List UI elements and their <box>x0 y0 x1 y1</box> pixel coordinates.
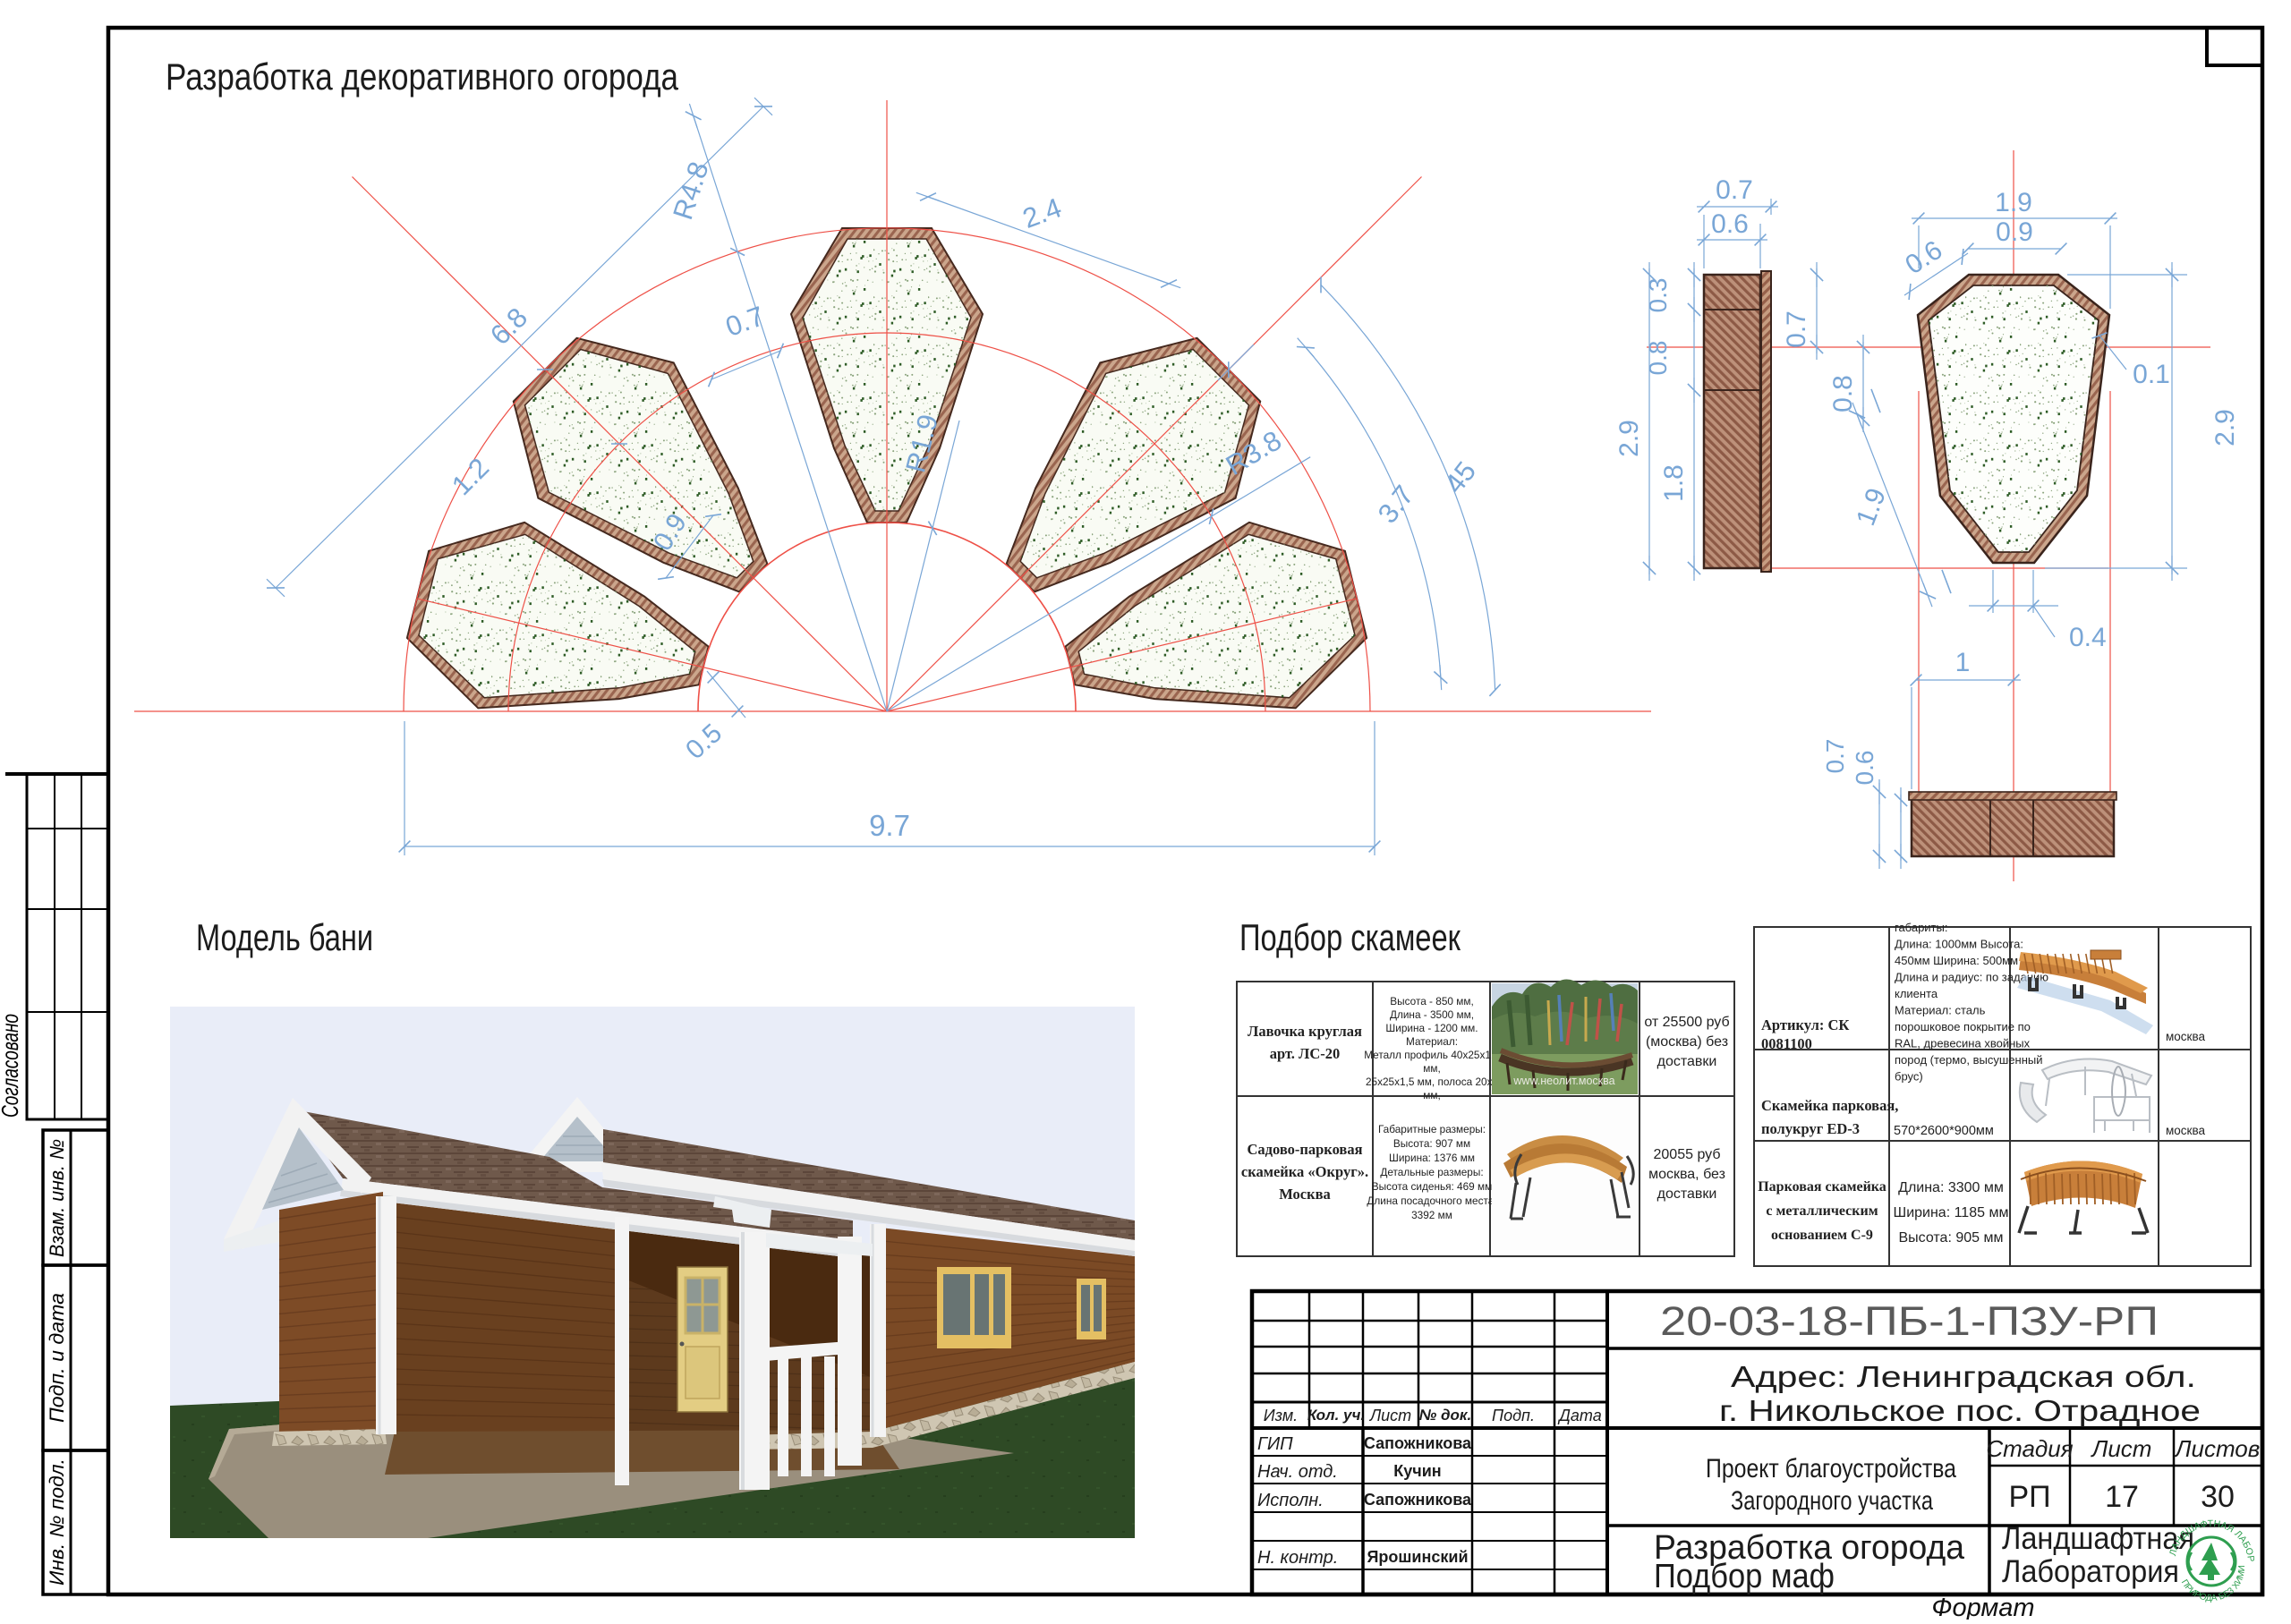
svg-text:мм,: мм, <box>1423 1062 1441 1075</box>
svg-text:Ярошинский: Ярошинский <box>1367 1548 1468 1566</box>
svg-text:основанием С-9: основанием С-9 <box>1771 1228 1873 1243</box>
svg-text:доставки: доставки <box>1657 1054 1717 1069</box>
svg-text:Садово-парковая: Садово-парковая <box>1247 1141 1362 1158</box>
svg-text:Ширина: 1376 мм: Ширина: 1376 мм <box>1389 1152 1475 1164</box>
svg-text:брус): брус) <box>1895 1070 1923 1084</box>
svg-text:20055 руб: 20055 руб <box>1654 1147 1721 1162</box>
svg-text:Лаборатория: Лаборатория <box>2002 1554 2179 1589</box>
svg-text:0081100: 0081100 <box>1761 1035 1812 1052</box>
svg-text:порошковое покрытие по: порошковое покрытие по <box>1895 1020 2031 1033</box>
svg-text:3392 мм: 3392 мм <box>1411 1209 1452 1221</box>
svg-text:Проект благоустройства: Проект благоустройства <box>1706 1454 1956 1484</box>
svg-text:450мм Ширина: 500мм: 450мм Ширина: 500мм <box>1895 954 2018 967</box>
svg-text:0.7: 0.7 <box>1716 175 1753 205</box>
svg-text:клиента: клиента <box>1895 987 1938 1000</box>
svg-text:Сапожникова: Сапожникова <box>1364 1491 1472 1509</box>
svg-text:Формат: Формат <box>1931 1594 2034 1620</box>
svg-text:Высота: 907 мм: Высота: 907 мм <box>1393 1137 1470 1150</box>
svg-text:Кол. уч.: Кол. уч. <box>1307 1407 1365 1424</box>
svg-text:с металлическим: с металлическим <box>1766 1203 1878 1219</box>
svg-text:Длина посадочного места:: Длина посадочного места: <box>1367 1195 1496 1207</box>
svg-text:Н. контр.: Н. контр. <box>1257 1548 1338 1568</box>
svg-text:Высота - 850 мм,: Высота - 850 мм, <box>1390 995 1473 1008</box>
svg-text:Ширина: 1185 мм: Ширина: 1185 мм <box>1894 1205 2009 1220</box>
svg-text:Исполн.: Исполн. <box>1257 1491 1324 1510</box>
svg-text:Подп.: Подп. <box>1492 1407 1535 1424</box>
svg-text:Артикул: СК: Артикул: СК <box>1761 1016 1849 1033</box>
svg-text:Стадия: Стадия <box>1986 1435 2073 1462</box>
svg-text:0.6: 0.6 <box>1851 751 1878 786</box>
svg-text:0.7: 0.7 <box>1782 310 1811 348</box>
svg-text:Детальные размеры:: Детальные размеры: <box>1380 1166 1483 1178</box>
svg-text:арт. ЛС-20: арт. ЛС-20 <box>1270 1045 1341 1062</box>
svg-text:1: 1 <box>1955 648 1971 677</box>
svg-text:полукруг ED-3: полукруг ED-3 <box>1761 1120 1860 1137</box>
svg-text:Нач. отд.: Нач. отд. <box>1257 1462 1338 1482</box>
svg-text:Подбор маф: Подбор маф <box>1654 1558 1835 1595</box>
svg-text:Модель бани: Модель бани <box>196 916 373 958</box>
svg-text:0.8: 0.8 <box>1828 375 1858 412</box>
svg-text:Дата: Дата <box>1557 1407 1602 1424</box>
svg-text:570*2600*900мм: 570*2600*900мм <box>1894 1124 1994 1138</box>
svg-text:Лавочка круглая: Лавочка круглая <box>1248 1023 1362 1040</box>
svg-text:Длина: 3300 мм: Длина: 3300 мм <box>1898 1180 2004 1195</box>
svg-text:Высота сиденья: 469 мм: Высота сиденья: 469 мм <box>1372 1180 1493 1193</box>
svg-text:Парковая скамейка: Парковая скамейка <box>1758 1179 1886 1195</box>
svg-text:Высота: 905 мм: Высота: 905 мм <box>1899 1230 2004 1246</box>
svg-text:доставки: доставки <box>1657 1186 1717 1202</box>
svg-text:0.9: 0.9 <box>1996 217 2033 247</box>
svg-text:Длина - 3500 мм,: Длина - 3500 мм, <box>1390 1008 1474 1021</box>
svg-text:25х25х1,5 мм, полоса 20х4: 25х25х1,5 мм, полоса 20х4 <box>1366 1076 1499 1088</box>
svg-text:Адрес: Ленинградская обл.: Адрес: Ленинградская обл. <box>1731 1360 2196 1393</box>
svg-text:Загородного участка: Загородного участка <box>1731 1486 1933 1516</box>
svg-text:пород (термо, высушенный: пород (термо, высушенный <box>1895 1053 2043 1067</box>
svg-text:17: 17 <box>2105 1480 2139 1514</box>
svg-text:от 25500 руб: от 25500 руб <box>1644 1015 1729 1030</box>
svg-text:Сапожникова: Сапожникова <box>1364 1434 1472 1452</box>
svg-text:москва: москва <box>2166 1030 2205 1043</box>
svg-text:Подп. и дата: Подп. и дата <box>46 1293 68 1423</box>
svg-text:2.9: 2.9 <box>2210 409 2240 446</box>
svg-text:москва: москва <box>2166 1124 2205 1137</box>
svg-text:Кучин: Кучин <box>1393 1462 1441 1480</box>
svg-text:Подбор скамеек: Подбор скамеек <box>1239 916 1461 958</box>
svg-text:Взам. инв. №: Взам. инв. № <box>46 1139 68 1257</box>
svg-text:№ док.: № док. <box>1419 1407 1471 1424</box>
svg-text:9.7: 9.7 <box>869 809 910 842</box>
svg-text:Согласовано: Согласовано <box>0 1014 23 1118</box>
svg-text:0.4: 0.4 <box>2069 623 2107 652</box>
svg-text:Листов: Листов <box>2174 1435 2261 1462</box>
svg-text:Материал: сталь: Материал: сталь <box>1895 1004 1986 1017</box>
svg-text:Лист: Лист <box>1369 1407 1411 1424</box>
svg-text:Ландшафтная: Ландшафтная <box>2002 1521 2194 1556</box>
svg-text:RAL, древесина хвойных: RAL, древесина хвойных <box>1895 1037 2031 1050</box>
svg-text:РП: РП <box>2008 1480 2050 1514</box>
svg-text:мм,: мм, <box>1423 1089 1441 1101</box>
svg-text:скамейка «Округ».: скамейка «Округ». <box>1241 1163 1368 1180</box>
svg-text:г. Никольское пос. Отрадное: г. Никольское пос. Отрадное <box>1719 1394 2201 1427</box>
svg-text:Москва: Москва <box>1279 1186 1331 1203</box>
svg-text:Металл профиль 40х25х1,5: Металл профиль 40х25х1,5 <box>1364 1049 1500 1061</box>
svg-text:0.1: 0.1 <box>2133 360 2170 389</box>
svg-text:(москва) без: (москва) без <box>1646 1034 1728 1050</box>
svg-text:Лист: Лист <box>2091 1435 2152 1462</box>
svg-text:0.6: 0.6 <box>1711 209 1749 239</box>
svg-text:Длина: 1000мм Высота:: Длина: 1000мм Высота: <box>1895 938 2023 951</box>
svg-text:2.9: 2.9 <box>1614 420 1644 457</box>
svg-text:москва, без: москва, без <box>1648 1167 1725 1182</box>
svg-text:Скамейка парковая,: Скамейка парковая, <box>1761 1097 1898 1114</box>
svg-text:Материал:: Материал: <box>1406 1035 1458 1048</box>
svg-text:Ширина - 1200 мм.: Ширина - 1200 мм. <box>1385 1022 1478 1034</box>
svg-text:30: 30 <box>2201 1480 2235 1514</box>
svg-text:Разработка декоративного огоро: Разработка декоративного огорода <box>166 55 679 98</box>
svg-text:0.7: 0.7 <box>1821 739 1849 774</box>
svg-text:Габаритные размеры:: Габаритные размеры: <box>1378 1123 1486 1135</box>
svg-text:1.9: 1.9 <box>1995 188 2032 217</box>
svg-text:20-03-18-ПБ-1-ПЗУ-РП: 20-03-18-ПБ-1-ПЗУ-РП <box>1660 1298 2159 1344</box>
svg-text:0.8: 0.8 <box>1644 341 1672 376</box>
svg-text:ГИП: ГИП <box>1257 1434 1293 1454</box>
svg-text:Изм.: Изм. <box>1264 1407 1298 1424</box>
svg-text:0.3: 0.3 <box>1644 278 1672 313</box>
svg-text:www.неолит.москва: www.неолит.москва <box>1512 1075 1614 1087</box>
svg-text:габариты:: габариты: <box>1895 921 1947 934</box>
svg-text:Инв. № подл.: Инв. № подл. <box>46 1458 68 1586</box>
svg-text:1.8: 1.8 <box>1659 464 1689 502</box>
